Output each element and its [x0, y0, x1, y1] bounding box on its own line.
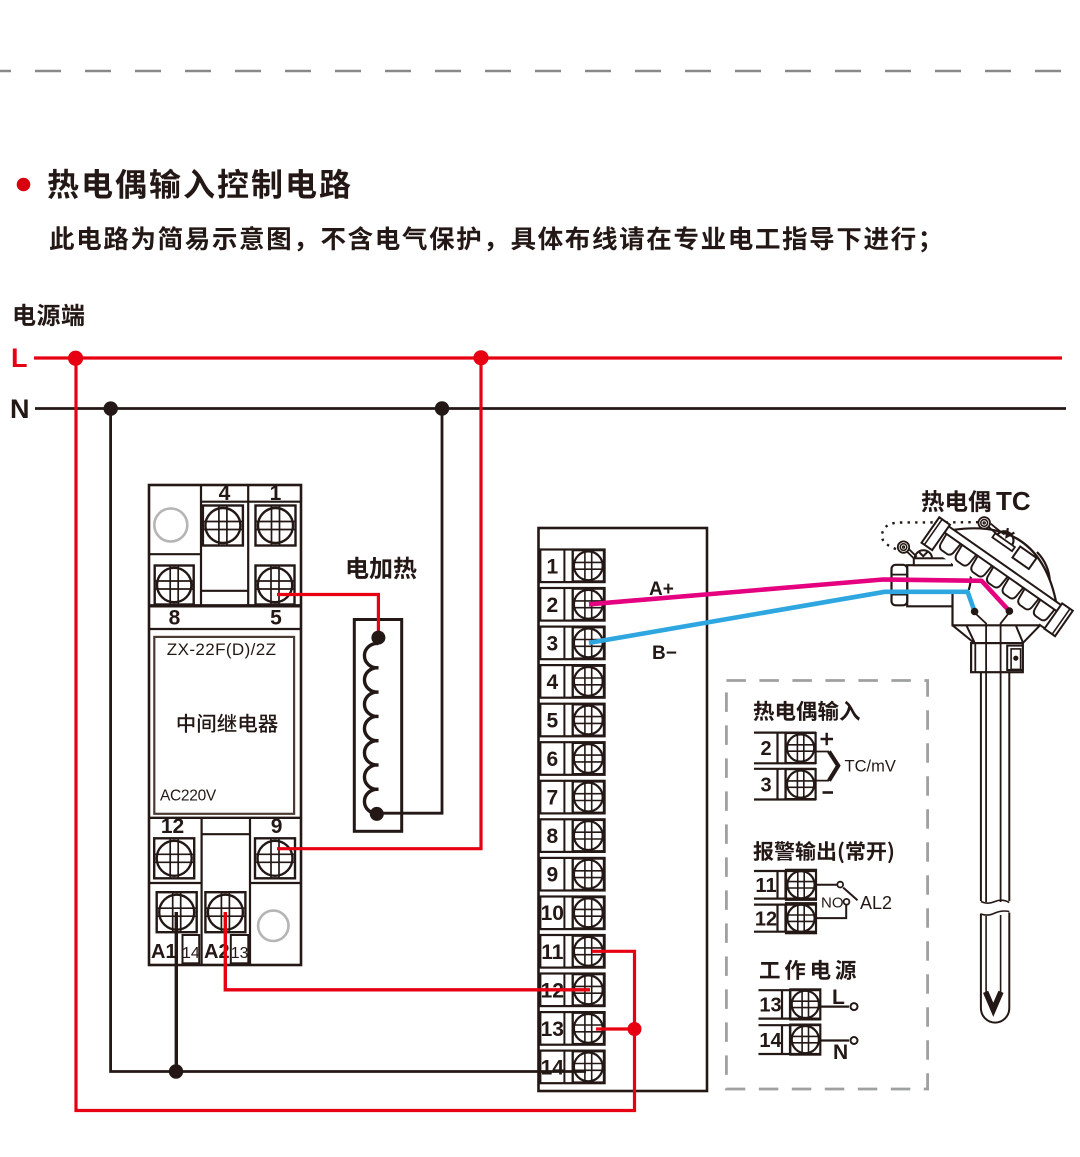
svg-text:AC220V: AC220V — [160, 788, 217, 805]
svg-text:9: 9 — [271, 815, 283, 838]
svg-text:3: 3 — [546, 632, 558, 655]
svg-text:14: 14 — [182, 945, 200, 962]
svg-text:9: 9 — [546, 864, 558, 887]
svg-text:A1: A1 — [151, 941, 177, 963]
svg-text:5: 5 — [546, 710, 558, 733]
svg-text:NO: NO — [821, 895, 844, 912]
svg-text:3: 3 — [760, 774, 771, 796]
svg-text:4: 4 — [219, 482, 231, 505]
svg-text:2: 2 — [760, 738, 771, 760]
svg-text:8: 8 — [169, 607, 181, 630]
svg-text:TC: TC — [996, 486, 1031, 516]
svg-text:13: 13 — [231, 945, 249, 962]
svg-text:11: 11 — [541, 941, 564, 964]
svg-text:ZX-22F(D)/2Z: ZX-22F(D)/2Z — [167, 640, 277, 659]
svg-text:2: 2 — [546, 594, 558, 617]
svg-text:L: L — [832, 986, 845, 1009]
svg-text:1: 1 — [270, 482, 282, 505]
svg-text:L: L — [11, 343, 28, 373]
svg-text:14: 14 — [541, 1056, 565, 1079]
svg-text:10: 10 — [541, 902, 564, 925]
svg-text:B−: B− — [652, 643, 677, 664]
svg-text:7: 7 — [546, 787, 558, 810]
svg-text:14: 14 — [759, 1030, 782, 1052]
svg-text:12: 12 — [755, 908, 777, 930]
svg-text:11: 11 — [755, 875, 776, 897]
svg-text:12: 12 — [161, 815, 184, 838]
svg-text:AL2: AL2 — [860, 893, 892, 913]
svg-text:4: 4 — [546, 671, 558, 694]
svg-text:6: 6 — [546, 748, 558, 771]
svg-text:TC/mV: TC/mV — [845, 758, 896, 776]
svg-text:13: 13 — [541, 1018, 564, 1041]
svg-text:8: 8 — [546, 825, 558, 848]
svg-text:5: 5 — [270, 607, 282, 630]
svg-text:N: N — [10, 394, 30, 424]
svg-text:N: N — [833, 1041, 848, 1064]
svg-text:13: 13 — [759, 995, 781, 1017]
svg-text:1: 1 — [546, 555, 558, 578]
